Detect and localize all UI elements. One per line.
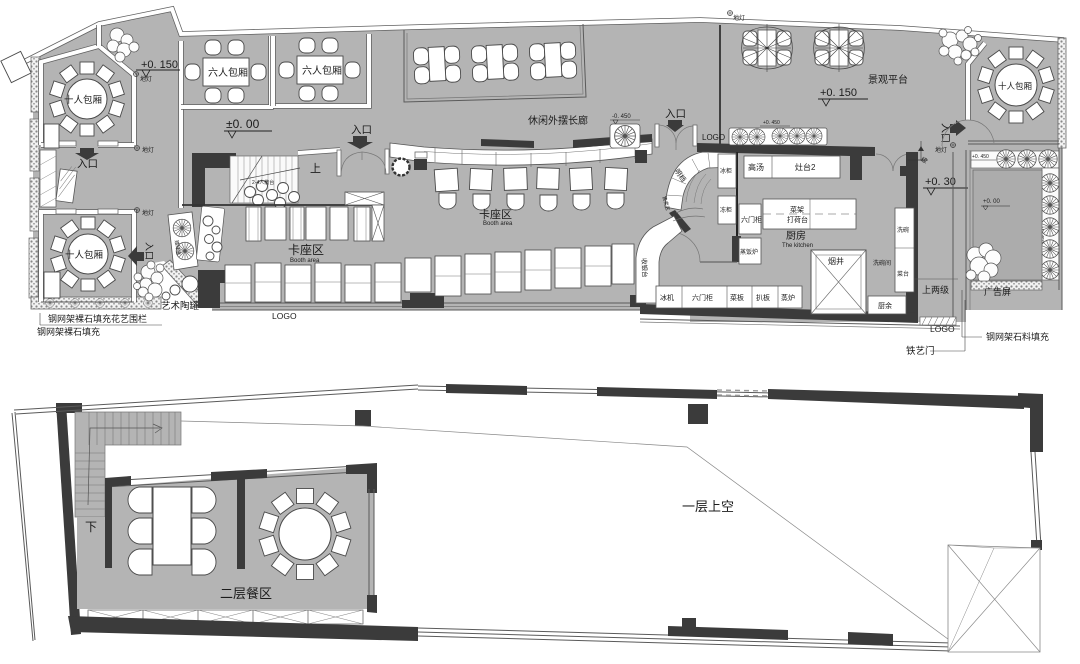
svg-text:卡座区: 卡座区 bbox=[288, 242, 324, 257]
svg-text:LOGO: LOGO bbox=[702, 133, 725, 142]
svg-text:+0. 150: +0. 150 bbox=[820, 87, 857, 99]
svg-text:钢网架裸石填充花艺围栏: 钢网架裸石填充花艺围栏 bbox=[48, 313, 147, 324]
svg-text:LOGO: LOGO bbox=[930, 324, 955, 334]
svg-text:景观平台: 景观平台 bbox=[868, 73, 908, 86]
svg-text:入口: 入口 bbox=[665, 108, 686, 120]
svg-text:LOGO: LOGO bbox=[272, 311, 297, 321]
svg-text:六门柜: 六门柜 bbox=[692, 293, 713, 302]
svg-text:蒸炉: 蒸炉 bbox=[781, 293, 795, 302]
svg-text:地灯: 地灯 bbox=[140, 75, 152, 83]
svg-text:洗碗: 洗碗 bbox=[897, 226, 909, 234]
svg-text:厨房: 厨房 bbox=[786, 229, 806, 242]
svg-text:厨余: 厨余 bbox=[878, 301, 892, 310]
svg-text:钢网架裸石填充: 钢网架裸石填充 bbox=[37, 326, 100, 337]
svg-text:休闲外摆长廊: 休闲外摆长廊 bbox=[528, 114, 588, 127]
svg-text:卡座区: 卡座区 bbox=[479, 207, 512, 221]
svg-text:+0. 00: +0. 00 bbox=[983, 199, 1001, 205]
svg-text:十人包厢: 十人包厢 bbox=[65, 249, 103, 261]
svg-text:烟井: 烟井 bbox=[828, 256, 844, 266]
svg-text:入口: 入口 bbox=[351, 124, 372, 136]
svg-text:±0. 00: ±0. 00 bbox=[226, 117, 260, 131]
svg-text:高汤: 高汤 bbox=[748, 162, 764, 172]
svg-text:-0. 450: -0. 450 bbox=[612, 114, 631, 120]
svg-text:地灯: 地灯 bbox=[935, 146, 947, 154]
svg-text:Booth area: Booth area bbox=[483, 221, 513, 227]
svg-text:+0. 30: +0. 30 bbox=[925, 176, 956, 188]
svg-text:二层餐区: 二层餐区 bbox=[220, 586, 272, 601]
svg-text:六门柜: 六门柜 bbox=[741, 215, 762, 224]
svg-text:菜板: 菜板 bbox=[730, 293, 744, 302]
svg-text:十人包厢: 十人包厢 bbox=[64, 94, 102, 106]
svg-text:钢网架石料填充: 钢网架石料填充 bbox=[986, 331, 1049, 342]
svg-text:艺术陶罐: 艺术陶罐 bbox=[161, 300, 200, 312]
svg-text:六人包厢: 六人包厢 bbox=[302, 64, 342, 77]
svg-text:地灯: 地灯 bbox=[142, 146, 154, 154]
svg-text:+0. 150: +0. 150 bbox=[141, 59, 178, 71]
svg-text:打荷台: 打荷台 bbox=[787, 215, 808, 224]
svg-text:菜台: 菜台 bbox=[897, 270, 909, 278]
svg-text:The kitchen: The kitchen bbox=[782, 243, 813, 249]
svg-text:冰柜: 冰柜 bbox=[720, 167, 732, 175]
svg-text:+0. 450: +0. 450 bbox=[763, 120, 780, 126]
svg-text:冰机: 冰机 bbox=[660, 293, 674, 302]
svg-text:十人包厢: 十人包厢 bbox=[998, 81, 1033, 91]
svg-text:一层上空: 一层上空 bbox=[682, 499, 734, 514]
svg-text:入口: 入口 bbox=[939, 123, 950, 143]
svg-text:入口: 入口 bbox=[144, 242, 154, 260]
svg-text:菜架: 菜架 bbox=[790, 205, 804, 214]
svg-text:下: 下 bbox=[85, 520, 97, 534]
svg-text:2-4人散台: 2-4人散台 bbox=[252, 179, 274, 186]
svg-text:扒板: 扒板 bbox=[756, 293, 770, 302]
svg-text:上: 上 bbox=[310, 162, 321, 175]
svg-text:六人包厢: 六人包厢 bbox=[208, 66, 248, 79]
svg-text:地灯: 地灯 bbox=[733, 14, 745, 22]
svg-text:+0. 450: +0. 450 bbox=[972, 154, 989, 160]
svg-text:蒸饭炉: 蒸饭炉 bbox=[740, 248, 758, 256]
svg-text:冻柜: 冻柜 bbox=[720, 206, 732, 214]
svg-text:入口: 入口 bbox=[77, 158, 98, 170]
svg-text:地灯: 地灯 bbox=[142, 209, 154, 217]
svg-text:洗碗间: 洗碗间 bbox=[873, 259, 891, 267]
svg-text:灶台2: 灶台2 bbox=[795, 162, 816, 172]
svg-text:广告屏: 广告屏 bbox=[984, 286, 1011, 297]
svg-text:上两级: 上两级 bbox=[922, 284, 949, 295]
